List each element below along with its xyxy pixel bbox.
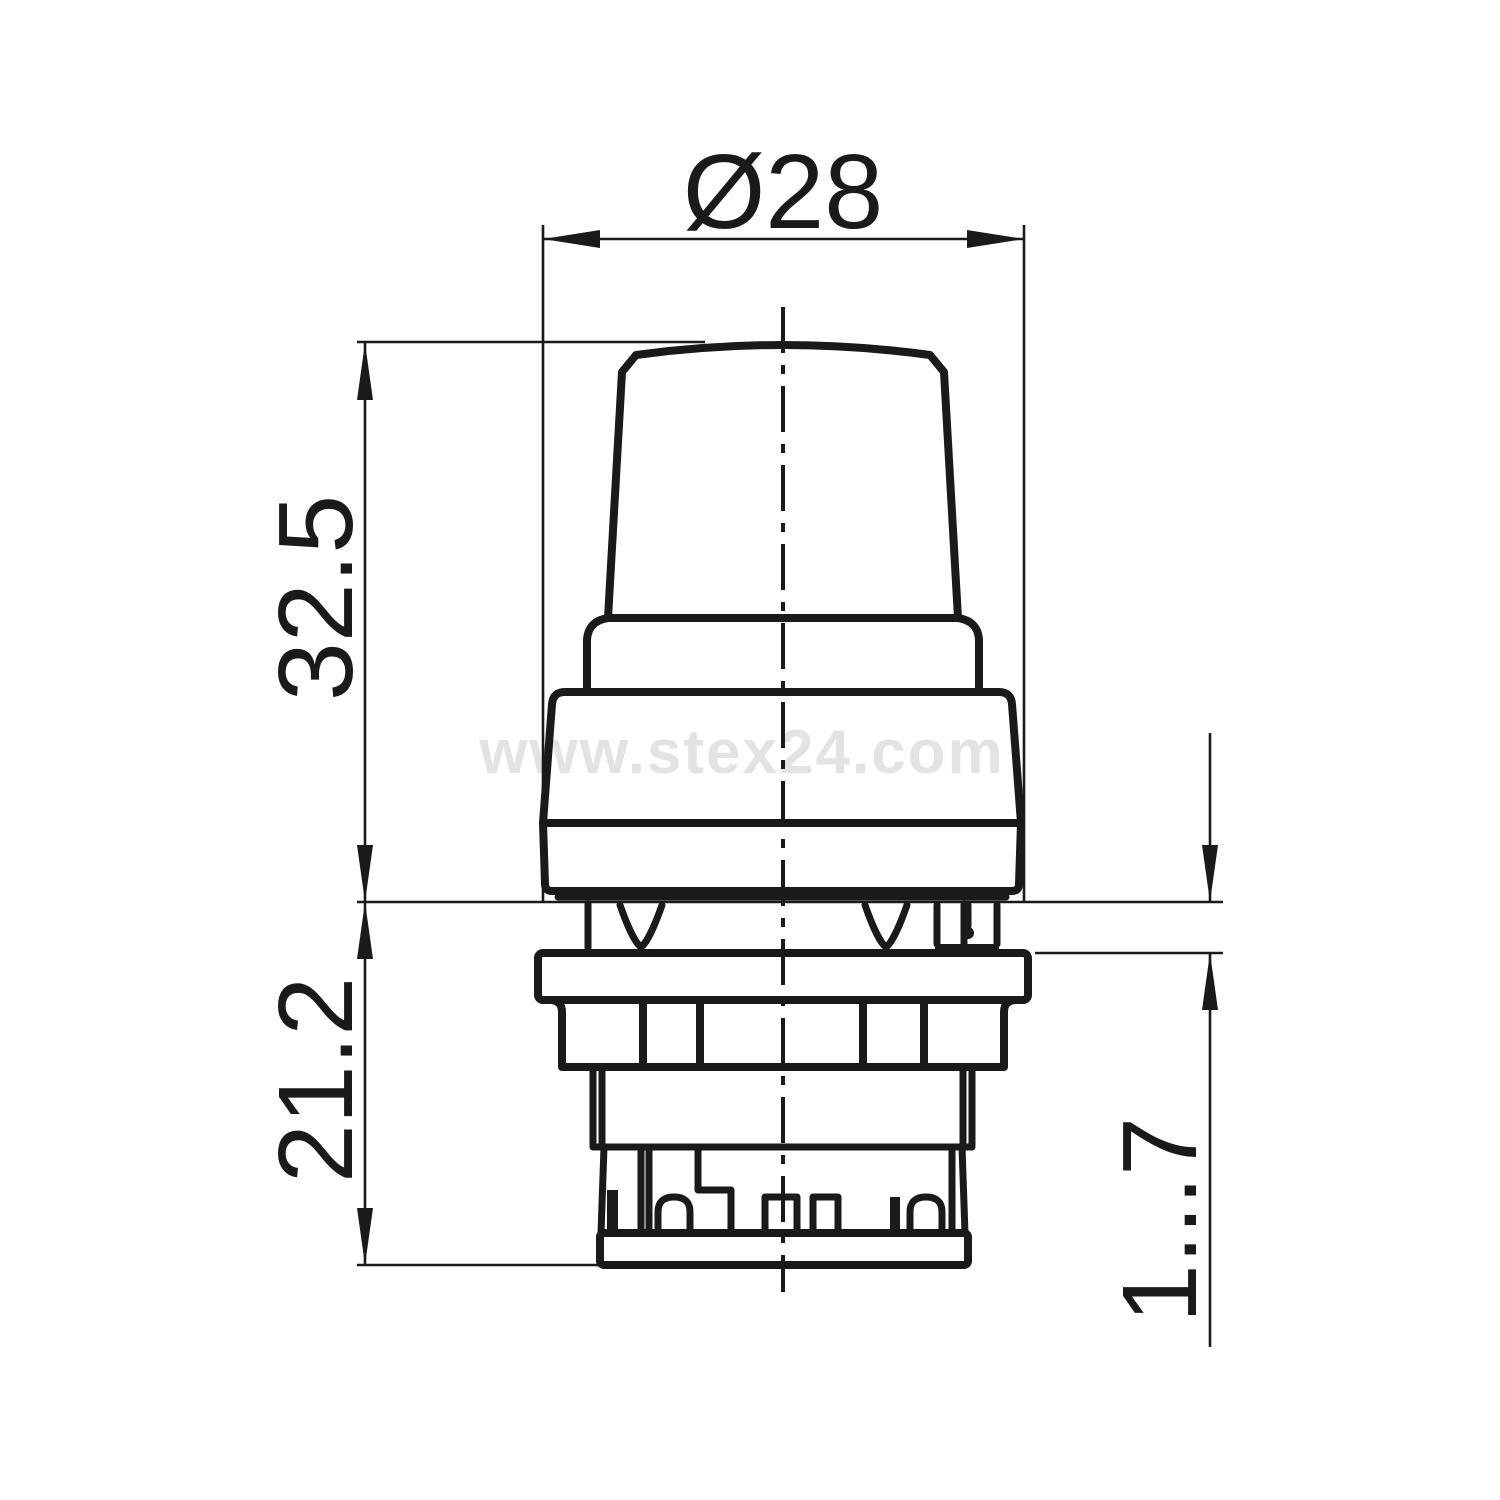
diameter-label: Ø28 [683,133,883,251]
technical-drawing: www.stex24.com [0,0,1500,1500]
clip-pin-dot [962,927,974,939]
watermark-text: www.stex24.com [478,718,1004,787]
drawing-canvas: www.stex24.com [0,0,1500,1500]
dimension-panel-range: 1...7 [1035,733,1223,1347]
mounting-clips [588,904,999,951]
height-upper-label: 32.5 [257,495,375,701]
height-lower-label: 21.2 [257,977,375,1183]
panel-range-label: 1...7 [1101,1117,1219,1323]
